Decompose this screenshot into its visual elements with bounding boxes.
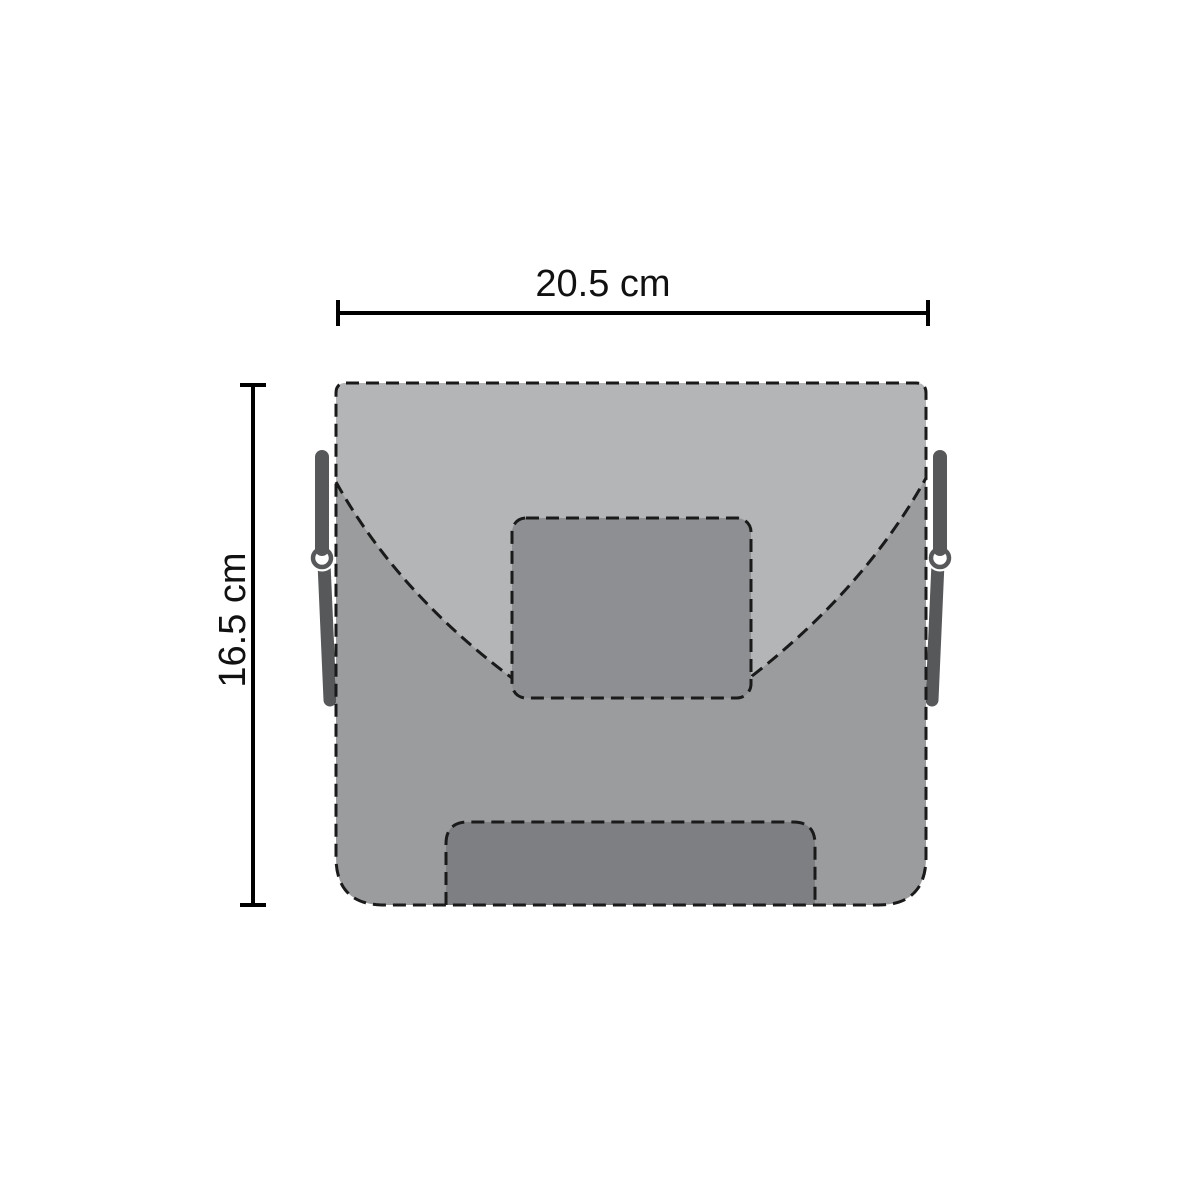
clasp-patch <box>512 518 751 698</box>
width-dimension: 20.5 cm <box>338 263 928 326</box>
bottom-panel <box>446 822 815 905</box>
left-strap-lower <box>324 563 330 700</box>
bag-dimension-diagram: 20.5 cm 16.5 cm <box>0 0 1200 1200</box>
left-strap <box>309 457 336 700</box>
height-dimension-label: 16.5 cm <box>212 552 254 687</box>
diagram-canvas: 20.5 cm 16.5 cm <box>0 0 1200 1200</box>
width-dimension-label: 20.5 cm <box>535 263 670 305</box>
height-dimension: 16.5 cm <box>212 385 266 905</box>
right-strap-lower <box>932 563 938 700</box>
right-strap <box>927 457 954 700</box>
